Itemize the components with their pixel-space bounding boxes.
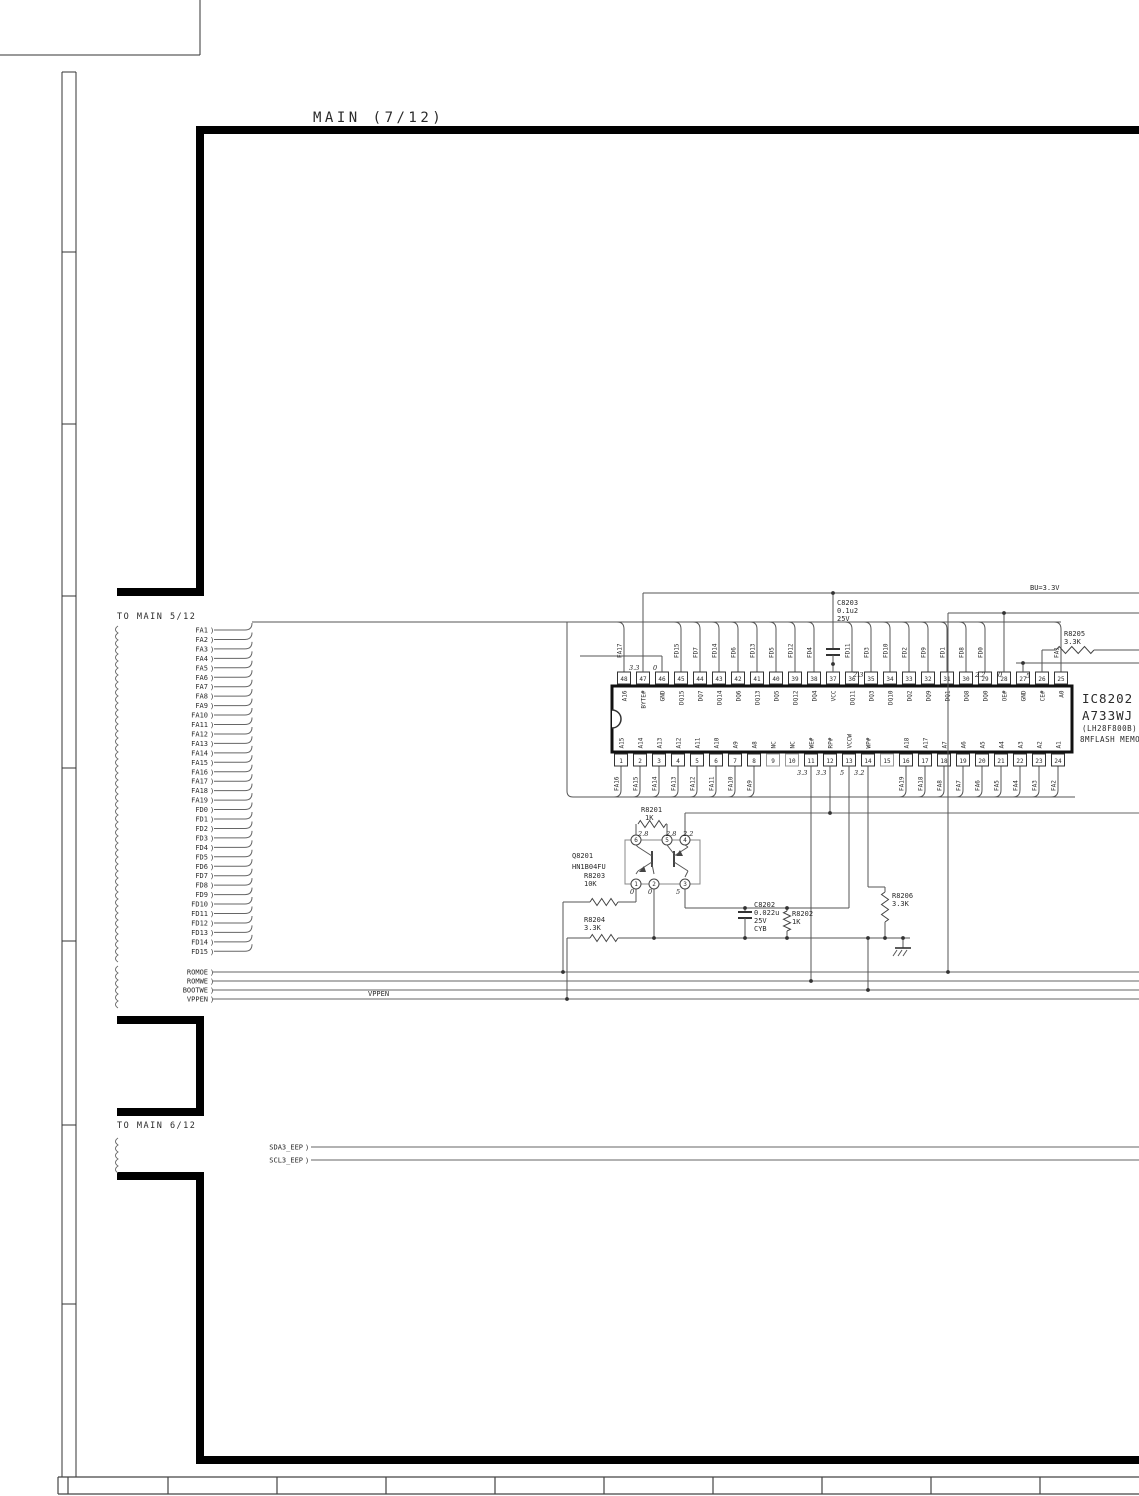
power-rail-label: BU=3.3V <box>1030 584 1060 592</box>
svg-text:23: 23 <box>1035 758 1043 765</box>
svg-text:30: 30 <box>962 676 970 683</box>
net-label-FD1: FD1 <box>940 647 947 658</box>
vppen-inline-label: VPPEN <box>368 990 389 998</box>
bus-signal-label-FD14: FD14 <box>191 938 208 946</box>
schematic-page: FA1)FA2)FA3)FA4)FA5)FA6)FA7)FA8)FA9)FA10… <box>0 0 1139 1496</box>
net-label-FA3: FA3 <box>1032 780 1039 791</box>
svg-text:): ) <box>210 920 214 928</box>
bus-signal-label-FA5: FA5 <box>195 664 208 672</box>
pin-name-23: A2 <box>1037 741 1044 749</box>
svg-text:46: 46 <box>658 676 666 683</box>
pin-name-42: DQ6 <box>736 690 743 701</box>
voltage-annotation: 2.3 <box>852 671 863 679</box>
svg-text:): ) <box>210 750 214 758</box>
bus-signal-label-FA12: FA12 <box>191 730 208 738</box>
bus-signal-label-FA17: FA17 <box>191 778 208 786</box>
pin-name-6: A10 <box>714 737 721 748</box>
net-label-FA19: FA19 <box>899 776 906 791</box>
svg-text:): ) <box>210 788 214 796</box>
voltage-annotation: 3.3 <box>816 769 826 777</box>
resistor-r8206-value: 3.3K <box>892 900 910 908</box>
svg-text:45: 45 <box>677 676 685 683</box>
bus-signal-label-FA4: FA4 <box>195 655 208 663</box>
net-label-FA18: FA18 <box>918 776 925 791</box>
svg-text:7: 7 <box>733 758 737 765</box>
bus-signal-label-FD10: FD10 <box>191 901 208 909</box>
pin-name-44: DQ7 <box>698 690 705 701</box>
svg-text:6: 6 <box>634 837 638 844</box>
pin-name-8: A8 <box>752 741 759 749</box>
svg-text:42: 42 <box>734 676 742 683</box>
svg-text:): ) <box>210 722 214 730</box>
svg-text:4: 4 <box>683 837 687 844</box>
bus-bracket <box>116 626 119 1173</box>
resistor-r8201-value: 1K <box>645 814 654 822</box>
resistor-r8203-ref: R8203 <box>584 872 605 880</box>
svg-text:15: 15 <box>883 758 891 765</box>
bus-signal-label-FD1: FD1 <box>195 816 208 824</box>
svg-text:20: 20 <box>978 758 986 765</box>
net-label-FA12: FA12 <box>690 776 697 791</box>
bottom-scale-strip <box>58 1477 1139 1494</box>
bus-signal-label-FD2: FD2 <box>195 825 208 833</box>
svg-text:4: 4 <box>676 758 680 765</box>
pin-name-18: A7 <box>942 741 949 749</box>
pin-name-47: BYTE# <box>641 690 648 708</box>
net-label-FA13: FA13 <box>671 776 678 791</box>
pin-name-40: DQ5 <box>774 690 781 701</box>
resistor-r8204-value: 3.3K <box>584 924 602 932</box>
cap-c8202-voltage: 25V <box>754 917 767 925</box>
bus-signal-label-FD9: FD9 <box>195 891 208 899</box>
section-label-to-main-5: TO MAIN 5/12 <box>117 612 196 622</box>
svg-text:3: 3 <box>657 758 661 765</box>
svg-text:25: 25 <box>1057 676 1065 683</box>
pin-name-45: DQ15 <box>679 690 686 705</box>
pin-name-7: A9 <box>733 741 740 749</box>
bus-signal-label-FA8: FA8 <box>195 693 208 701</box>
pin-name-32: DQ9 <box>926 690 933 701</box>
svg-text:9: 9 <box>771 758 775 765</box>
svg-text:22: 22 <box>1016 758 1024 765</box>
svg-text:): ) <box>210 740 214 748</box>
resistor-r8203-value: 10K <box>584 880 597 888</box>
eeprom-signal-label-SDA3_EEP: SDA3_EEP <box>269 1144 303 1152</box>
net-label-FA14: FA14 <box>652 776 659 791</box>
resistor-r8206-ref: R8206 <box>892 892 913 900</box>
pin-name-1: A15 <box>619 737 626 748</box>
svg-text:5: 5 <box>665 837 669 844</box>
cap-c8203-value: 0.1u2 <box>837 607 858 615</box>
svg-text:14: 14 <box>864 758 872 765</box>
net-label-FA8: FA8 <box>937 780 944 791</box>
net-label-FA4: FA4 <box>1013 780 1020 791</box>
net-label-FD5: FD5 <box>769 647 776 658</box>
bus-signal-label-FA9: FA9 <box>195 702 208 710</box>
bus-signal-label-FA11: FA11 <box>191 721 208 729</box>
transistor-q8201-ref: Q8201 <box>572 852 593 860</box>
pin-name-48: A16 <box>622 690 629 701</box>
voltage-annotation: 5 <box>1026 672 1030 680</box>
svg-text:): ) <box>210 939 214 947</box>
svg-text:21: 21 <box>997 758 1005 765</box>
svg-text:40: 40 <box>772 676 780 683</box>
svg-text:44: 44 <box>696 676 704 683</box>
net-label-FA11: FA11 <box>709 776 716 791</box>
svg-text:): ) <box>210 674 214 682</box>
net-label-FD6: FD6 <box>731 647 738 658</box>
bus-signal-list: FA1)FA2)FA3)FA4)FA5)FA6)FA7)FA8)FA9)FA10… <box>191 623 252 956</box>
svg-text:): ) <box>210 882 214 890</box>
pin-name-38: DQ4 <box>812 690 819 701</box>
bus-signal-label-FA2: FA2 <box>195 636 208 644</box>
net-label-FD2: FD2 <box>902 647 909 658</box>
net-label-FA10: FA10 <box>728 776 735 791</box>
pin-name-3: A13 <box>657 737 664 748</box>
pin-name-9: NC <box>771 741 778 749</box>
transistor-q8201-part: HN1B04FU <box>572 863 606 871</box>
section-label-to-main-6: TO MAIN 6/12 <box>117 1121 196 1131</box>
net-label-FD8: FD8 <box>959 647 966 658</box>
svg-text:): ) <box>210 693 214 701</box>
svg-text:18: 18 <box>940 758 948 765</box>
net-label-FD14: FD14 <box>712 643 719 658</box>
voltage-annotation: 2.2 <box>974 671 985 679</box>
pin-name-43: DQ14 <box>717 690 724 705</box>
voltage-annotation: 2.2 <box>682 830 693 838</box>
svg-text:47: 47 <box>639 676 647 683</box>
svg-text:): ) <box>210 627 214 635</box>
svg-text:): ) <box>210 759 214 767</box>
pin-name-41: DQ13 <box>755 690 762 705</box>
pin-name-26: CE# <box>1040 690 1047 701</box>
svg-text:33: 33 <box>905 676 913 683</box>
svg-text:16: 16 <box>902 758 910 765</box>
net-label-FD11: FD11 <box>845 643 852 658</box>
pin-name-19: A6 <box>961 741 968 749</box>
voltage-annotation: 0 <box>630 888 634 896</box>
cap-c8202-value: 0.022u <box>754 909 779 917</box>
svg-text:): ) <box>210 873 214 881</box>
control-signal-label-ROMOE: ROMOE <box>187 969 208 977</box>
resistor-r8205-value: 3.3K <box>1064 638 1082 646</box>
ic-package: (LH28F800B) <box>1082 724 1137 733</box>
svg-text:): ) <box>210 863 214 871</box>
pin-name-24: A1 <box>1056 741 1063 749</box>
resistor-r8202-ref: R8202 <box>792 910 813 918</box>
net-label-FD15: FD15 <box>674 643 681 658</box>
voltage-annotation: 0 <box>653 664 657 672</box>
cap-c8203-ref: C8203 <box>837 599 858 607</box>
bus-signal-label-FA18: FA18 <box>191 787 208 795</box>
bus-signal-label-FA15: FA15 <box>191 759 208 767</box>
voltage-annotation: 5 <box>676 888 680 896</box>
net-label-FA15: FA15 <box>633 776 640 791</box>
svg-text:34: 34 <box>886 676 894 683</box>
net-label-FA7: FA7 <box>956 780 963 791</box>
voltage-annotation: 2.8 <box>665 830 676 838</box>
svg-text:): ) <box>210 901 214 909</box>
ic-pin-15: 15 <box>881 754 894 766</box>
net-label-FA6: FA6 <box>975 780 982 791</box>
cap-c8202-code: CYB <box>754 925 767 933</box>
voltage-annotation: 0 <box>998 671 1002 679</box>
svg-text:): ) <box>305 1144 309 1152</box>
pin-name-25: A0 <box>1059 690 1066 698</box>
pin-name-5: A11 <box>695 737 702 748</box>
svg-text:): ) <box>210 636 214 644</box>
bus-signal-label-FD5: FD5 <box>195 853 208 861</box>
pin-name-12: RP# <box>828 737 835 748</box>
control-signal-label-ROMWE: ROMWE <box>187 978 208 986</box>
pin-name-34: DQ10 <box>888 690 895 705</box>
ic-ref: IC8202 <box>1082 691 1133 706</box>
svg-text:5: 5 <box>695 758 699 765</box>
pin-name-10: NC <box>790 741 797 749</box>
svg-text:): ) <box>210 712 214 720</box>
voltage-annotation: 2.8 <box>637 830 648 838</box>
svg-text:41: 41 <box>753 676 761 683</box>
svg-text:24: 24 <box>1054 758 1062 765</box>
svg-text:): ) <box>210 655 214 663</box>
net-label-FA5: FA5 <box>994 780 1001 791</box>
voltage-annotation: 3.3 <box>629 664 639 672</box>
net-label-FD0: FD0 <box>978 647 985 658</box>
bus-signal-label-FD6: FD6 <box>195 863 208 871</box>
svg-text:38: 38 <box>810 676 818 683</box>
svg-text:2: 2 <box>652 881 656 888</box>
voltage-annotation: 3.3 <box>797 769 807 777</box>
resistor-r8201-ref: R8201 <box>641 806 662 814</box>
svg-text:): ) <box>210 835 214 843</box>
cap-c8202-ref: C8202 <box>754 901 775 909</box>
svg-text:): ) <box>210 769 214 777</box>
pin-name-36: DQ11 <box>850 690 857 705</box>
net-label-FD4: FD4 <box>807 647 814 658</box>
bus-signal-label-FA10: FA10 <box>191 712 208 720</box>
bus-signal-label-FD11: FD11 <box>191 910 208 918</box>
svg-text:): ) <box>210 854 214 862</box>
bus-signal-label-FD15: FD15 <box>191 948 208 956</box>
svg-text:2: 2 <box>638 758 642 765</box>
bus-signal-label-FA1: FA1 <box>195 627 208 635</box>
net-label-FD12: FD12 <box>788 643 795 658</box>
schematic-canvas: FA1)FA2)FA3)FA4)FA5)FA6)FA7)FA8)FA9)FA10… <box>0 0 1139 1496</box>
control-signal-label-BOOTWE: BOOTWE <box>183 987 208 995</box>
pin-name-17: A17 <box>923 737 930 748</box>
voltage-annotation: 0 <box>648 888 652 896</box>
pin-name-16: A18 <box>904 737 911 748</box>
pin-name-20: A5 <box>980 741 987 749</box>
ic-part: A733WJ <box>1082 708 1133 723</box>
svg-text:): ) <box>210 684 214 692</box>
bus-signal-label-FD4: FD4 <box>195 844 208 852</box>
svg-text:): ) <box>210 807 214 815</box>
pin-name-22: A3 <box>1018 741 1025 749</box>
pin-name-46: GND <box>660 690 667 701</box>
bus-signal-label-FD8: FD8 <box>195 882 208 890</box>
svg-text:): ) <box>210 778 214 786</box>
svg-text:): ) <box>210 911 214 919</box>
svg-text:1: 1 <box>619 758 623 765</box>
svg-text:): ) <box>210 797 214 805</box>
pin-name-29: DQ0 <box>983 690 990 701</box>
svg-text:6: 6 <box>714 758 718 765</box>
svg-text:): ) <box>210 969 214 977</box>
pin-name-30: DQ8 <box>964 690 971 701</box>
pin-name-27: GND <box>1021 690 1028 701</box>
svg-text:): ) <box>210 731 214 739</box>
svg-text:): ) <box>305 1157 309 1165</box>
svg-text:48: 48 <box>620 676 628 683</box>
svg-text:): ) <box>210 825 214 833</box>
pin-name-14: WP# <box>866 737 873 748</box>
svg-text:3: 3 <box>683 881 687 888</box>
voltage-annotation: 5 <box>840 769 844 777</box>
pin-name-11: WE# <box>809 737 816 748</box>
bus-signal-label-FD0: FD0 <box>195 806 208 814</box>
pin-name-39: DQ12 <box>793 690 800 705</box>
control-signal-label-VPPEN: VPPEN <box>187 996 208 1004</box>
svg-text:11: 11 <box>807 758 815 765</box>
resistor-r8202-value: 1K <box>792 918 801 926</box>
pin-name-2: A14 <box>638 737 645 748</box>
bus-signal-label-FD7: FD7 <box>195 872 208 880</box>
net-label-FA2: FA2 <box>1051 780 1058 791</box>
fold-ruler <box>62 72 76 1477</box>
bus-signal-label-FA13: FA13 <box>191 740 208 748</box>
resistor-r8204-ref: R8204 <box>584 916 605 924</box>
voltage-annotation: 3.2 <box>854 769 864 777</box>
eeprom-signal-list: SDA3_EEP)SCL3_EEP) <box>269 1144 1139 1166</box>
ic-description: 8MFLASH MEMORY <box>1080 735 1139 744</box>
svg-text:): ) <box>210 816 214 824</box>
svg-text:26: 26 <box>1038 676 1046 683</box>
control-signal-list: ROMOE)ROMWE)BOOTWE)VPPEN) <box>183 969 1139 1005</box>
svg-text:): ) <box>210 948 214 956</box>
net-label-FD9: FD9 <box>921 647 928 658</box>
bus-signal-label-FA16: FA16 <box>191 768 208 776</box>
svg-text:): ) <box>210 665 214 673</box>
svg-text:): ) <box>210 929 214 937</box>
svg-text:43: 43 <box>715 676 723 683</box>
svg-text:8: 8 <box>752 758 756 765</box>
svg-text:): ) <box>210 978 214 986</box>
net-label-FD3: FD3 <box>864 647 871 658</box>
eeprom-signal-label-SCL3_EEP: SCL3_EEP <box>269 1157 303 1165</box>
svg-text:): ) <box>210 892 214 900</box>
bus-signal-label-FA3: FA3 <box>195 645 208 653</box>
pin-name-21: A4 <box>999 741 1006 749</box>
svg-text:37: 37 <box>829 676 837 683</box>
svg-text:10: 10 <box>788 758 796 765</box>
svg-text:): ) <box>210 646 214 654</box>
svg-text:31: 31 <box>943 676 951 683</box>
svg-text:12: 12 <box>826 758 834 765</box>
bus-signal-label-FA7: FA7 <box>195 683 208 691</box>
svg-text:): ) <box>210 987 214 995</box>
net-label-FA16: FA16 <box>614 776 621 791</box>
transistor-q8201: 654123 <box>625 835 700 889</box>
svg-text:): ) <box>210 703 214 711</box>
net-label-FD13: FD13 <box>750 643 757 658</box>
bus-signal-label-FA14: FA14 <box>191 749 208 757</box>
svg-text:19: 19 <box>959 758 967 765</box>
svg-text:32: 32 <box>924 676 932 683</box>
svg-text:13: 13 <box>845 758 853 765</box>
bus-signal-label-FD12: FD12 <box>191 919 208 927</box>
page-title: MAIN (7/12) <box>313 110 444 126</box>
net-label-FD7: FD7 <box>693 647 700 658</box>
svg-text:): ) <box>210 996 214 1004</box>
resistor-r8205-ref: R8205 <box>1064 630 1085 638</box>
bus-signal-label-FD13: FD13 <box>191 929 208 937</box>
svg-text:1: 1 <box>634 881 638 888</box>
net-label-FD10: FD10 <box>883 643 890 658</box>
bus-signal-label-FA6: FA6 <box>195 674 208 682</box>
pin-name-4: A12 <box>676 737 683 748</box>
pin-name-28: OE# <box>1002 690 1009 701</box>
svg-text:): ) <box>210 844 214 852</box>
svg-text:35: 35 <box>867 676 875 683</box>
pin-name-13: VCCW <box>847 734 854 749</box>
pin-name-37: VCC <box>831 690 838 701</box>
bus-signal-label-FD3: FD3 <box>195 834 208 842</box>
pin-name-35: DQ3 <box>869 690 876 701</box>
svg-text:39: 39 <box>791 676 799 683</box>
bus-signal-label-FA19: FA19 <box>191 797 208 805</box>
cap-c8203-voltage: 25V <box>837 615 850 623</box>
net-label-FA9: FA9 <box>747 780 754 791</box>
pin-name-33: DQ2 <box>907 690 914 701</box>
svg-text:17: 17 <box>921 758 929 765</box>
